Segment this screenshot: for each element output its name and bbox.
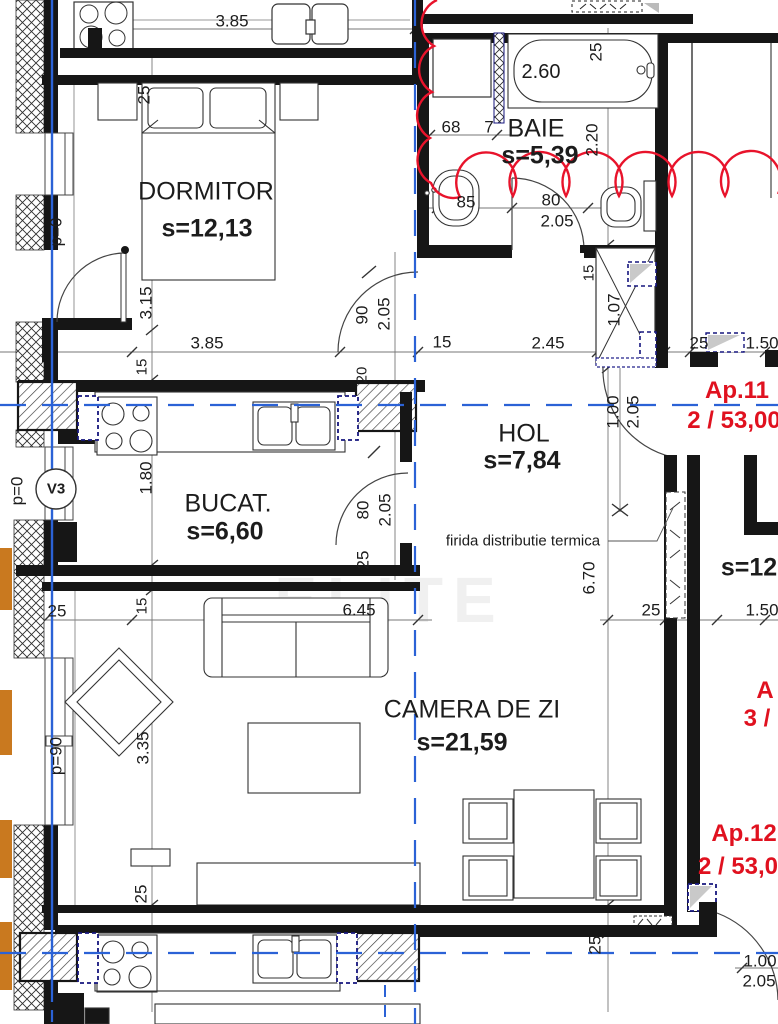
dim-68: 68 <box>442 119 461 136</box>
dim-315: 3.15 <box>138 286 155 319</box>
dim-25-mid-left: 25 <box>48 603 67 620</box>
dim-107: 1.07 <box>606 293 623 326</box>
annotation-firida: firida distributie termica <box>446 534 600 549</box>
apartment-info-ap12: 2 / 53,0 <box>698 855 778 879</box>
dim-25-baie: 25 <box>588 43 605 62</box>
dim-385-row: 3.85 <box>190 335 223 352</box>
room-label-baie: BAIE <box>508 117 565 142</box>
sink-upper <box>272 4 348 44</box>
apartment-label-right-partial: A <box>756 679 773 703</box>
dim-180: 1.80 <box>138 461 155 494</box>
stove-upper <box>74 2 133 50</box>
dim-80-bucat-door: 80 <box>355 501 372 520</box>
dining-table <box>514 790 594 898</box>
room-label-camera: CAMERA DE ZI <box>384 698 560 723</box>
firida-leader <box>608 508 673 541</box>
dim-15-camera: 15 <box>135 598 150 615</box>
window-dormitor <box>45 133 73 195</box>
room-label-dormitor: DORMITOR <box>138 180 274 205</box>
insulation-orange-patches <box>0 548 12 990</box>
dim-150-mid-right: 1.50 <box>745 602 778 619</box>
dim-20: 20 <box>355 367 370 384</box>
dim-85: 85 <box>457 194 476 211</box>
washing-machine <box>433 39 491 97</box>
dim-205-door: 2.05 <box>376 297 393 330</box>
dim-25-bottom-left: 25 <box>133 885 150 904</box>
room-area-hol: s=7,84 <box>483 449 560 474</box>
bucatarie-furniture <box>78 392 358 455</box>
room-area-neighbor-partial: s=12 <box>721 556 777 581</box>
dormitor-entry-door-arc <box>57 253 123 322</box>
room-area-dormitor: s=12,13 <box>161 217 252 242</box>
room-area-camera: s=21,59 <box>416 731 507 756</box>
dim-245: 2.45 <box>531 335 564 352</box>
dim-25-bottom-right: 25 <box>587 936 604 955</box>
apartment-label-ap11: Ap.11 <box>705 379 769 403</box>
left-exterior-wall <box>0 0 98 1024</box>
coffee-table <box>248 723 360 793</box>
tv-cabinet <box>197 863 420 905</box>
armchair <box>65 648 173 756</box>
dim-670: 6.70 <box>581 561 598 594</box>
room-label-hol: HOL <box>498 422 549 447</box>
dim-top-width: 3.85 <box>215 13 248 30</box>
room-area-baie: s=5,39 <box>501 144 578 169</box>
dim-335: 3.35 <box>135 731 152 764</box>
dim-25-bucat: 25 <box>355 551 372 570</box>
side-table <box>131 849 170 866</box>
dim-205-bucat-door: 2.05 <box>377 493 394 526</box>
partition <box>494 33 504 123</box>
dim-645-sofa: 6.45 <box>342 602 375 619</box>
corner-shadow <box>644 3 659 13</box>
vent-box <box>78 396 98 440</box>
v3-marker-label: V3 <box>47 482 65 497</box>
label-p90: p=90 <box>48 737 65 775</box>
toilet <box>601 181 656 231</box>
apartment-label-ap12: Ap.12 <box>711 822 776 846</box>
firida-top-symbol <box>572 1 642 12</box>
dim-7: 7 <box>484 119 493 136</box>
dim-100-bottom-door: 1.00 <box>743 953 776 970</box>
hol-and-boundary <box>603 350 778 935</box>
dim-bathtub: 2.60 <box>522 62 561 82</box>
dim-220: 2.20 <box>584 123 601 156</box>
apartment-info-ap11: 2 / 53,00 <box>687 409 778 433</box>
floorplan-page: ELITE 3.85 25 DORMITOR s=12,13 2.60 25 B… <box>0 0 778 1024</box>
dim-15-shaft: 15 <box>582 265 597 282</box>
label-p0-upper: p=0 <box>48 218 65 247</box>
dim-100-entry: 1.00 <box>605 395 622 428</box>
room-label-bucatarie: BUCAT. <box>184 492 271 517</box>
vent-box <box>338 396 358 440</box>
nightstand-right <box>280 83 318 120</box>
label-p0-lower: p=0 <box>9 477 26 506</box>
room-area-bucatarie: s=6,60 <box>186 520 263 545</box>
dim-25-dormitor: 25 <box>136 86 153 105</box>
dim-205-entry: 2.05 <box>625 395 642 428</box>
apartment-info-right-partial: 3 / <box>744 707 771 731</box>
dim-15-row: 15 <box>433 334 452 351</box>
dim-90-door: 90 <box>354 306 371 325</box>
dim-205-bottom-door: 2.05 <box>742 973 775 990</box>
nightstand-left <box>98 83 137 120</box>
dim-25-row: 25 <box>690 335 709 352</box>
dim-15-bucat: 15 <box>135 359 150 376</box>
dim-205-baie: 2.05 <box>540 213 573 230</box>
dim-25-mid-right: 25 <box>642 602 661 619</box>
dim-150-row: 1.50 <box>745 335 778 352</box>
dim-80-baie: 80 <box>542 192 561 209</box>
